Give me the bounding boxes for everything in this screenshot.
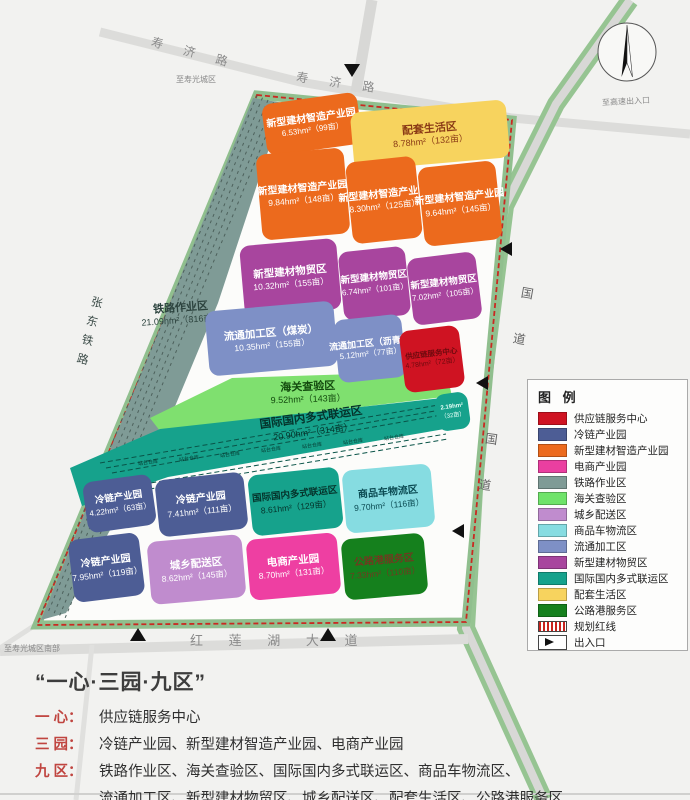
entrance-triangle-icon — [545, 638, 554, 646]
to-city-south-label: 至寿光城区南部 — [4, 643, 60, 654]
footer-line-text: 供应链服务中心 — [99, 710, 201, 726]
footer-title: “一心·三园·九区” — [35, 666, 675, 696]
legend-swatch — [538, 572, 567, 585]
legend-swatch — [538, 460, 567, 473]
zone-block: 城乡配送区8.62hm²（145亩） — [146, 534, 246, 605]
footer-line-text: 冷链产业园、新型建材智造产业园、电商产业园 — [99, 737, 404, 753]
legend-label: 国际国内多式联运区 — [574, 571, 669, 586]
legend-swatch — [538, 524, 567, 537]
entrance-marker-bottom-2 — [320, 628, 336, 641]
zone-block: 冷链产业园7.41hm²（111亩） — [154, 472, 248, 538]
footer-line-label: 九 区： — [35, 759, 99, 786]
legend-label: 新型建材物贸区 — [574, 555, 648, 570]
legend-row-entrance: 出入口 — [538, 635, 687, 650]
legend-row: 商品车物流区 — [538, 523, 687, 538]
planning-map: 新型建材智造产业园6.53hm²（99亩）配套生活区8.78hm²（132亩）新… — [0, 0, 690, 800]
zone-block: 冷链产业园4.22hm²（63亩） — [82, 473, 157, 533]
zone-block: 冷链产业园7.95hm²（119亩） — [67, 532, 145, 603]
legend-row: 配套生活区 — [538, 587, 687, 602]
legend-label: 冷链产业园 — [574, 427, 627, 442]
legend-label: 电商产业园 — [574, 459, 627, 474]
legend-row: 电商产业园 — [538, 459, 687, 474]
legend-label: 规划红线 — [574, 619, 616, 634]
legend-label: 铁路作业区 — [574, 475, 627, 490]
legend-swatch — [538, 540, 567, 553]
legend-label: 出入口 — [574, 635, 606, 650]
entrance-marker-right-2 — [476, 376, 488, 390]
redline-swatch — [538, 621, 567, 632]
footer-line-4: 流通加工区、新型建材物贸区、城乡配送区、配套生活区、公路港服务区 — [35, 786, 675, 800]
legend-title: 图 例 — [538, 387, 687, 406]
legend-label: 海关查验区 — [574, 491, 627, 506]
legend-label: 商品车物流区 — [574, 523, 637, 538]
zone-block: 新型建材智造产业园9.64hm²（145亩） — [417, 160, 503, 247]
footer-line-2: 三 园：冷链产业园、新型建材智造产业园、电商产业园 — [35, 732, 675, 759]
zone-block: 电商产业园8.70hm²（131亩） — [246, 532, 342, 601]
footer: “一心·三园·九区” 一 心：供应链服务中心 三 园：冷链产业园、新型建材智造产… — [35, 666, 675, 800]
zone-block: 流通加工区（沥青）5.12hm²（77亩） — [333, 314, 407, 384]
legend-label: 供应链服务中心 — [574, 411, 648, 426]
legend-row-redline: 规划红线 — [538, 619, 687, 634]
footer-line-3: 九 区：铁路作业区、海关查验区、国际国内多式联运区、商品车物流区、 — [35, 759, 675, 786]
footer-line-label: 一 心： — [35, 705, 99, 732]
legend: 图 例 供应链服务中心冷链产业园新型建材智造产业园电商产业园铁路作业区海关查验区… — [527, 379, 688, 651]
legend-swatch — [538, 476, 567, 489]
footer-line-text: 流通加工区、新型建材物贸区、城乡配送区、配套生活区、公路港服务区 — [99, 791, 563, 800]
legend-row: 供应链服务中心 — [538, 411, 687, 426]
legend-swatch — [538, 604, 567, 617]
legend-swatch — [538, 508, 567, 521]
legend-row: 铁路作业区 — [538, 475, 687, 490]
legend-label: 新型建材智造产业园 — [574, 443, 669, 458]
zone-name: 海关查验区 — [280, 380, 335, 395]
legend-row: 城乡配送区 — [538, 507, 687, 522]
entrance-marker-right-1 — [500, 242, 512, 256]
zone-block: 流通加工区（煤炭）10.35hm²（155亩） — [204, 301, 338, 377]
legend-label: 流通加工区 — [574, 539, 627, 554]
zone-block: 国际国内多式联运区8.61hm²（129亩） — [247, 466, 344, 536]
legend-label: 城乡配送区 — [574, 507, 627, 522]
legend-label: 公路港服务区 — [574, 603, 637, 618]
entrance-marker-top — [344, 64, 360, 77]
legend-swatch — [538, 492, 567, 505]
zone-block: 新型建材智造产业园8.30hm²（125亩） — [345, 156, 423, 245]
legend-swatch — [538, 556, 567, 569]
zone-block: 商品车物流区9.70hm²（116亩） — [341, 463, 435, 534]
zone-block: 新型建材物贸区7.02hm²（105亩） — [406, 251, 483, 326]
legend-swatch — [538, 588, 567, 601]
zone-block: 新型建材智造产业园9.84hm²（148亩） — [255, 147, 350, 240]
legend-row: 公路港服务区 — [538, 603, 687, 618]
entrance-marker-right-3 — [452, 524, 464, 538]
legend-label: 配套生活区 — [574, 587, 627, 602]
footer-line-text: 铁路作业区、海关查验区、国际国内多式联运区、商品车物流区、 — [99, 764, 520, 780]
legend-row: 海关查验区 — [538, 491, 687, 506]
legend-swatch — [538, 412, 567, 425]
to-city-label: 至寿光城区 — [176, 74, 216, 85]
entrance-swatch — [538, 635, 567, 650]
legend-swatch — [538, 428, 567, 441]
legend-row: 国际国内多式联运区 — [538, 571, 687, 586]
legend-items: 供应链服务中心冷链产业园新型建材智造产业园电商产业园铁路作业区海关查验区城乡配送… — [538, 411, 687, 618]
honglianhu-avenue-label: 红 莲 湖 大 道 — [190, 630, 368, 649]
legend-row: 新型建材智造产业园 — [538, 443, 687, 458]
zone-block: 新型建材智造产业园6.53hm²（99亩） — [261, 92, 363, 157]
zone-block: 公路港服务区7.33hm²（110亩） — [340, 532, 428, 600]
zone-block: 供应链服务中心4.78hm²（72亩） — [398, 325, 465, 394]
legend-row: 冷链产业园 — [538, 427, 687, 442]
legend-swatch — [538, 444, 567, 457]
zone-block: 新型建材物贸区6.74hm²（101亩） — [338, 246, 412, 322]
legend-row: 流通加工区 — [538, 539, 687, 554]
zone-block: 2.19hm²（32亩） — [434, 391, 472, 432]
zone-area: （32亩） — [440, 411, 465, 421]
footer-line-label: 三 园： — [35, 732, 99, 759]
legend-row: 新型建材物贸区 — [538, 555, 687, 570]
footer-line-1: 一 心：供应链服务中心 — [35, 705, 675, 732]
entrance-marker-bottom-1 — [130, 628, 146, 641]
